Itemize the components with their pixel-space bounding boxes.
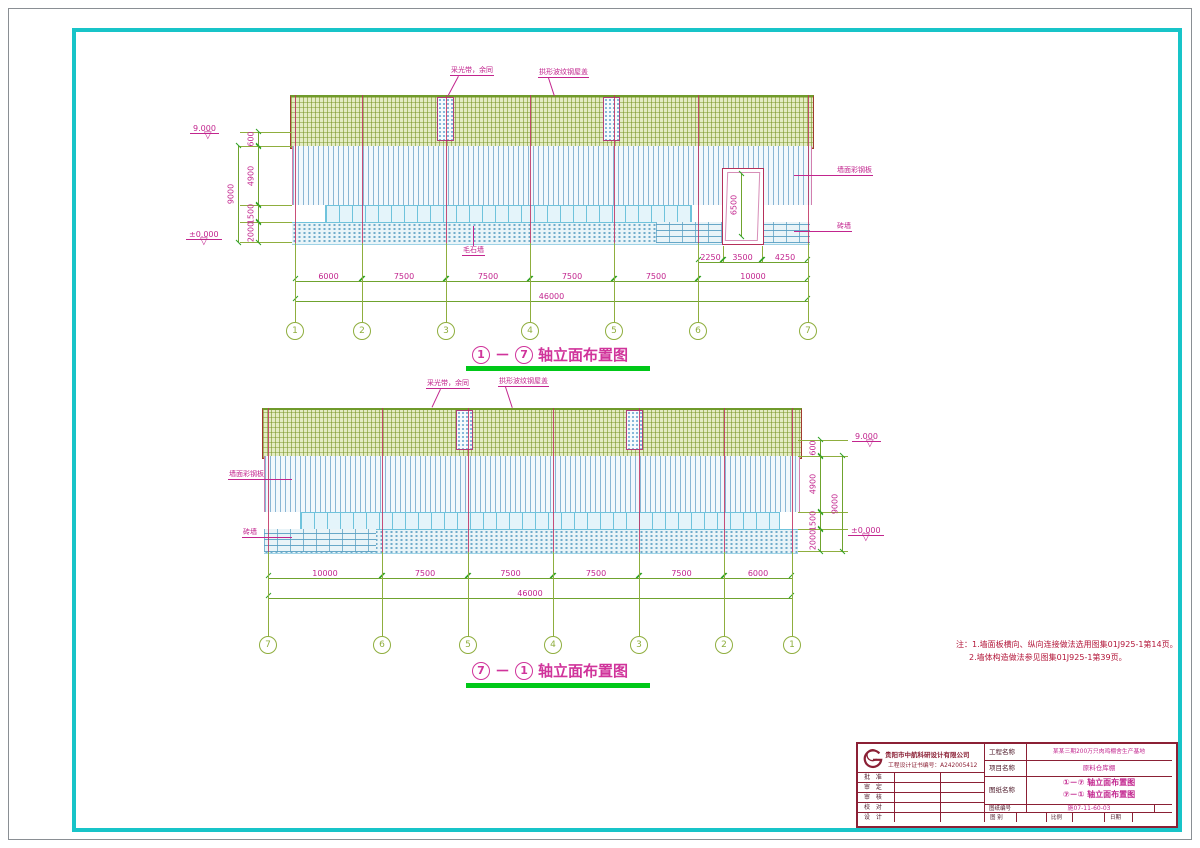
drawing-name-value-1: ①－⑦ 轴立面布置图 xyxy=(1026,779,1172,787)
tb-line xyxy=(894,772,895,822)
axis-bubble: 6 xyxy=(373,636,391,654)
dim-bay: 6000 xyxy=(295,281,362,282)
axis-extension xyxy=(792,552,793,636)
tb-line xyxy=(1046,812,1047,822)
skylight xyxy=(626,410,643,450)
drawing-name-value-2: ⑦－① 轴立面布置图 xyxy=(1026,791,1172,799)
axis-extension xyxy=(446,243,447,322)
axis-line xyxy=(362,95,363,243)
axis-extension xyxy=(295,243,296,322)
brick-base xyxy=(264,529,376,552)
title-underline xyxy=(466,683,650,688)
dim-door-height: 6500 xyxy=(741,174,742,236)
tb-line xyxy=(858,792,984,793)
tb-line xyxy=(940,772,941,822)
drawing-name-label: 图纸名称 xyxy=(989,786,1015,794)
figure-title-1: 1 － 7 轴立面布置图 xyxy=(472,344,628,365)
axis-line xyxy=(268,408,269,552)
drawing-number-value: 施07-11-60-03 xyxy=(1026,805,1152,813)
axis-extension xyxy=(468,552,469,636)
axis-extension xyxy=(362,243,363,322)
leader-line xyxy=(794,231,836,232)
title-block: 贵阳市中航科研设计有限公司 工程设计证书编号：A242005412 批 准 审 … xyxy=(856,742,1178,828)
drawing-number-label: 图纸编号 xyxy=(989,805,1011,813)
axis-bubble: 1 xyxy=(783,636,801,654)
tb-line xyxy=(1104,812,1105,822)
axis-line xyxy=(724,408,725,552)
axis-line xyxy=(698,95,699,243)
dim-bay: 7500 xyxy=(468,578,553,579)
level-mark-top: 9.000▽ xyxy=(190,124,219,134)
dim-bay: 7500 xyxy=(639,578,724,579)
dim-bay: 6000 xyxy=(724,578,792,579)
dim-4900: 4900 xyxy=(820,456,821,512)
dim-9000: 9000 xyxy=(842,456,843,551)
figure-title-2: 7 － 1 轴立面布置图 xyxy=(472,660,628,681)
sheet-type-label: 图 别 xyxy=(990,814,1003,822)
skylight-label: 采光带，余同 xyxy=(450,66,494,76)
sign-row-label: 审 核 xyxy=(864,794,884,802)
dim-bay: 10000 xyxy=(268,578,382,579)
wall-panel-label: 墙面彩钢板 xyxy=(836,166,873,176)
roof-hatch xyxy=(262,408,802,459)
axis-bubble: 4 xyxy=(521,322,539,340)
axis-line xyxy=(792,408,793,552)
axis-extension xyxy=(553,552,554,636)
axis-bubble: 3 xyxy=(437,322,455,340)
dim-bay: 7500 xyxy=(530,281,614,282)
sign-row-label: 设 计 xyxy=(864,814,884,822)
date-label: 日期 xyxy=(1110,814,1121,822)
dim-bay: 10000 xyxy=(698,281,808,282)
dim-bay: 7500 xyxy=(614,281,698,282)
tb-line xyxy=(1016,812,1017,822)
axis-line xyxy=(468,408,469,552)
tb-line xyxy=(1132,812,1133,822)
level-triangle-icon: ▽ xyxy=(862,533,870,543)
project-name-value: 某某三期200万只肉鸡棚舍生产基地 xyxy=(1026,748,1172,756)
brick-wall-label: 砖墙 xyxy=(836,222,852,232)
axis-extension xyxy=(808,243,809,322)
wall-cladding xyxy=(264,456,800,512)
axis-extension xyxy=(530,243,531,322)
axis-bubble: 7 xyxy=(259,636,277,654)
sign-row-label: 校 对 xyxy=(864,804,884,812)
dim-4250: 4250 xyxy=(762,262,808,263)
tb-line xyxy=(858,772,984,773)
skylight xyxy=(456,410,473,450)
certificate-number: 工程设计证书编号：A242005412 xyxy=(888,760,977,769)
axis-bubble: 3 xyxy=(630,636,648,654)
dim-2000: 2000 xyxy=(820,529,821,551)
tb-line xyxy=(984,760,1172,761)
axis-line xyxy=(530,95,531,243)
axis-line xyxy=(446,95,447,243)
axis-bubble: 2 xyxy=(715,636,733,654)
dim-bay: 7500 xyxy=(382,578,468,579)
tb-line xyxy=(858,782,984,783)
note-line-1: 注：1.墙面板横向、纵向连接做法选用图集01J925-1第14页。 xyxy=(956,638,1178,651)
level-mark-top: 9.000▽ xyxy=(852,432,881,442)
leader-line xyxy=(473,226,474,246)
roof-label: 拱形波纹钢屋盖 xyxy=(538,68,589,78)
tb-line xyxy=(984,744,985,822)
axis-extension xyxy=(698,243,699,322)
axis-line xyxy=(808,95,809,243)
item-name-label: 项目名称 xyxy=(989,764,1015,772)
axis-extension xyxy=(382,552,383,636)
skylight xyxy=(603,97,620,141)
general-notes: 注：1.墙面板横向、纵向连接做法选用图集01J925-1第14页。 2.墙体构造… xyxy=(956,638,1178,664)
tb-line xyxy=(1154,804,1155,812)
level-triangle-icon: ▽ xyxy=(200,237,208,247)
dim-9000: 9000 xyxy=(238,146,239,242)
axis-extension xyxy=(639,552,640,636)
level-mark-zero: ±0.000▽ xyxy=(848,526,884,536)
drawing-sheet: 6500 600 4900 1500 2000 9000 9.000▽ ±0.0… xyxy=(0,0,1200,848)
dim-total: 46000 xyxy=(295,301,808,302)
leader-line xyxy=(794,175,836,176)
note-line-2: 2.墙体构造做法参见图集01J925-1第39页。 xyxy=(969,651,1178,664)
level-triangle-icon: ▽ xyxy=(866,439,874,449)
level-triangle-icon: ▽ xyxy=(204,131,212,141)
dim-4900: 4900 xyxy=(258,146,259,205)
axis-bubble: 5 xyxy=(605,322,623,340)
leader-line xyxy=(264,479,292,480)
axis-line xyxy=(614,95,615,243)
dim-bay: 7500 xyxy=(362,281,446,282)
tb-line xyxy=(858,812,984,813)
axis-bubble: 6 xyxy=(689,322,707,340)
roof-hatch xyxy=(290,95,814,149)
axis-line xyxy=(382,408,383,552)
project-name-label: 工程名称 xyxy=(989,748,1015,756)
company-name: 贵阳市中航科研设计有限公司 xyxy=(885,749,970,759)
tb-line xyxy=(858,802,984,803)
dim-2000: 2000 xyxy=(258,222,259,242)
dim-total: 46000 xyxy=(268,598,792,599)
title-underline xyxy=(466,366,650,371)
base-wall-label: 毛石墙 xyxy=(462,246,485,256)
brick-wall-label: 砖墙 xyxy=(242,528,258,538)
dim-bay: 7500 xyxy=(446,281,530,282)
axis-line xyxy=(639,408,640,552)
dim-bay: 7500 xyxy=(553,578,639,579)
skylight-label: 采光带，余同 xyxy=(426,379,470,389)
axis-line xyxy=(553,408,554,552)
tb-line xyxy=(984,776,1172,777)
door xyxy=(722,168,764,245)
leader-line xyxy=(258,537,292,538)
dim-3500: 3500 xyxy=(723,262,762,263)
sign-row-label: 批 准 xyxy=(864,774,884,782)
tb-line xyxy=(1072,812,1073,822)
dim-2250: 2250 xyxy=(698,262,723,263)
sign-row-label: 审 定 xyxy=(864,784,884,792)
scale-label: 比例 xyxy=(1051,814,1062,822)
level-mark-zero: ±0.000▽ xyxy=(186,230,222,240)
company-logo xyxy=(861,747,883,769)
axis-bubble: 4 xyxy=(544,636,562,654)
axis-bubble: 5 xyxy=(459,636,477,654)
wall-panel-label: 墙面彩钢板 xyxy=(228,470,265,480)
axis-extension xyxy=(724,552,725,636)
axis-bubble: 7 xyxy=(799,322,817,340)
axis-extension xyxy=(614,243,615,322)
axis-line xyxy=(295,95,296,243)
axis-bubble: 1 xyxy=(286,322,304,340)
axis-bubble: 2 xyxy=(353,322,371,340)
item-name-value: 原料仓库棚 xyxy=(1026,764,1172,772)
axis-extension xyxy=(268,552,269,636)
